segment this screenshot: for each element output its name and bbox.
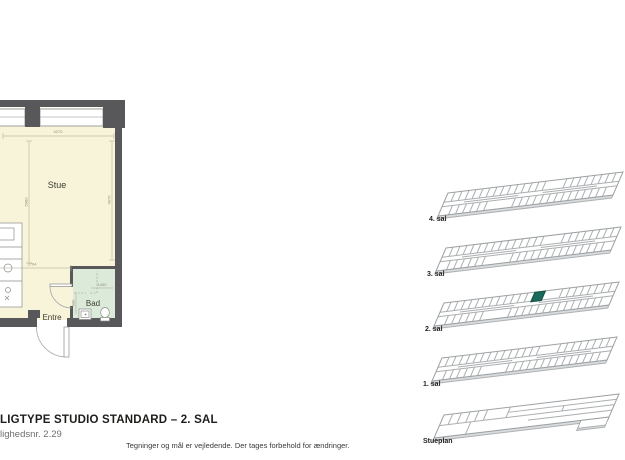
- stack-floor-2sal: 2. sal: [425, 282, 619, 333]
- entrance-door-swing: [37, 327, 67, 357]
- dim-bad-width: 1400: [98, 282, 108, 287]
- dim-stue-width: 4270: [54, 129, 64, 134]
- sheet-title: LIGTYPE STUDIO STANDARD – 2. SAL: [0, 414, 218, 426]
- toilet-icon: [101, 308, 110, 318]
- apartment-number: lighedsnr. 2.29: [0, 429, 62, 440]
- dim-stue-height-right: 4970: [107, 195, 112, 205]
- hob-icon: [6, 288, 11, 293]
- stack-label-4sal: 4. sal: [429, 216, 447, 223]
- drawing-sheet: 4270 5980 4970 2704 1400 900 Stue Bad En…: [0, 0, 625, 460]
- dim-bad-depth: 900: [71, 299, 76, 306]
- stack-floor-4sal: 4. sal: [429, 172, 623, 223]
- drawing-canvas: 4270 5980 4970 2704 1400 900 Stue Bad En…: [0, 0, 625, 460]
- room-label-bad: Bad: [86, 299, 100, 308]
- stack-diagram: 4. sal 3. sal 2. sal 1. sal Stueplan: [423, 172, 623, 448]
- stack-floor-stueplan: Stueplan: [423, 394, 619, 448]
- disclaimer-text: Tegninger og mål er vejledende. Der tage…: [126, 441, 349, 450]
- stack-label-3sal: 3. sal: [427, 271, 445, 278]
- stack-label-1sal: 1. sal: [423, 381, 441, 388]
- entrance-door: [37, 327, 70, 357]
- dim-kitchen-width: 2704: [28, 262, 38, 267]
- kitchen-fixtures: [0, 223, 22, 307]
- floor-plan: 4270 5980 4970 2704 1400 900 Stue Bad En…: [0, 100, 125, 357]
- toilet-tank-icon: [101, 318, 110, 322]
- stack-floor-3sal: 3. sal: [427, 227, 621, 278]
- window-band: [0, 109, 103, 126]
- stack-floor-1sal: 1. sal: [423, 337, 617, 388]
- dim-stue-height-left: 5980: [24, 197, 29, 207]
- room-label-stue: Stue: [48, 180, 67, 190]
- room-label-entre: Entre: [42, 313, 62, 322]
- stack-label-2sal: 2. sal: [425, 326, 443, 333]
- stack-label-stueplan: Stueplan: [423, 438, 453, 445]
